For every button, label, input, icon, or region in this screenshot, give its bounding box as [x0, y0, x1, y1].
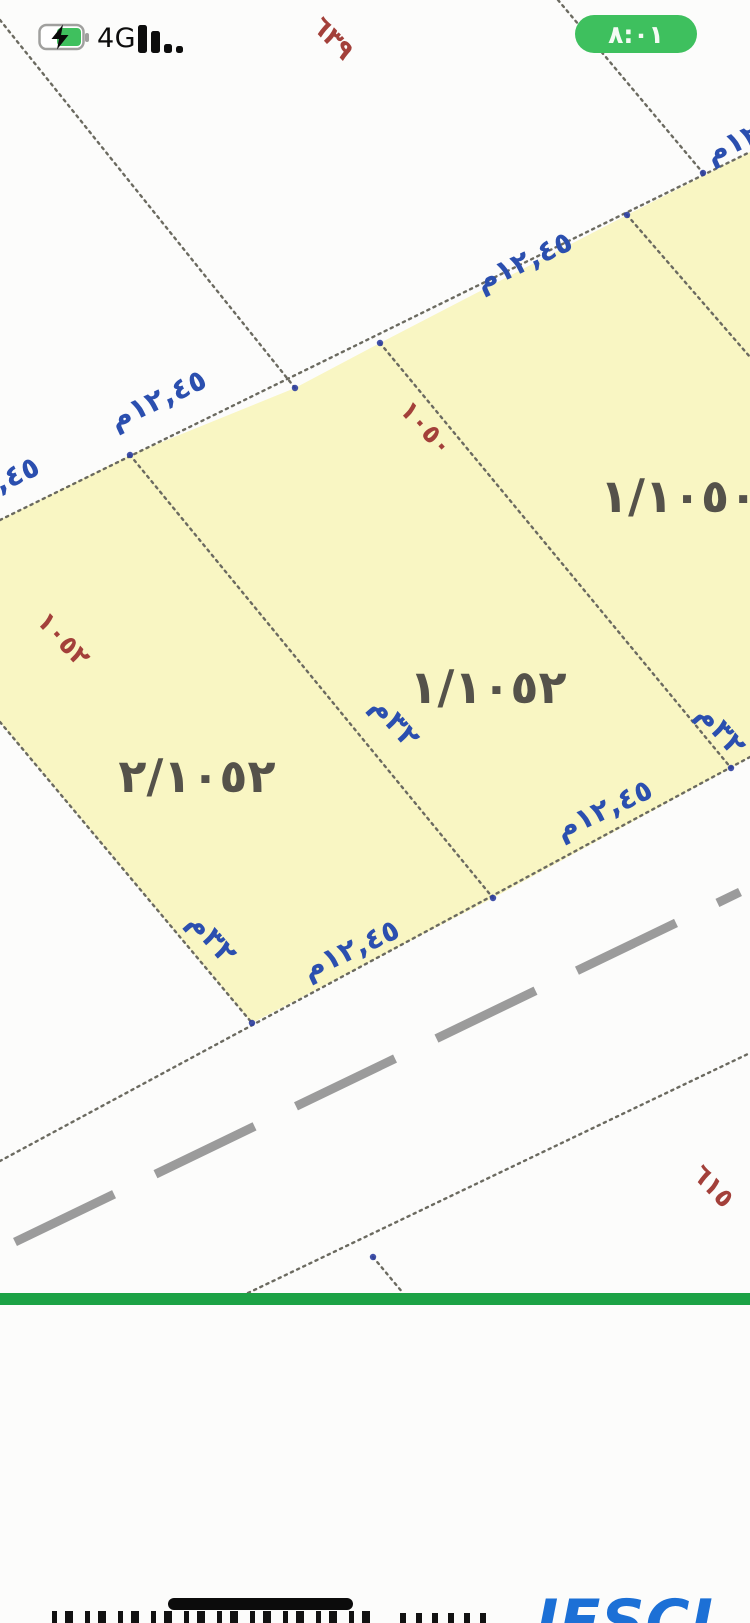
logo-text-fragment: JESCI: [536, 1596, 750, 1623]
cut-off-arabic-text-2: [400, 1613, 490, 1623]
cut-off-arabic-text: [52, 1611, 382, 1623]
road-branch-line: [373, 1257, 403, 1293]
plot-number-left: ٢/١٠٥٢: [118, 749, 275, 803]
signal-bars-icon: [138, 24, 194, 53]
network-type-label: 4G: [97, 23, 136, 54]
green-divider-line: [0, 1293, 750, 1305]
plot-number-right-cut: ١/١٠٥٠: [600, 469, 750, 523]
parcel-block-fill: [0, 152, 750, 1023]
plot-number-middle: ١/١٠٥٢: [409, 660, 566, 714]
cut-off-logo: JESCI: [536, 1596, 750, 1623]
red-number-bottom-cut: ٦١٥: [686, 1159, 740, 1214]
adjacent-boundary-northwest: [0, 20, 295, 388]
home-indicator[interactable]: [168, 1598, 353, 1610]
battery-charging-icon: [38, 22, 90, 52]
phone-screenshot: ١٢,٤٥م ١٢,٤٥م ١٢,٤٥م ١٢,٤٥م ١٢,٤٥م ١٢,٤٥…: [0, 0, 750, 1623]
cadastral-plan-image[interactable]: ١٢,٤٥م ١٢,٤٥م ١٢,٤٥م ١٢,٤٥م ١٢,٤٥م ١٢,٤٥…: [0, 0, 750, 1623]
time-pill[interactable]: ٨:٠١: [575, 15, 697, 53]
status-bar: 4G ٨:٠١: [0, 0, 750, 64]
time-label: ٨:٠١: [608, 20, 664, 49]
